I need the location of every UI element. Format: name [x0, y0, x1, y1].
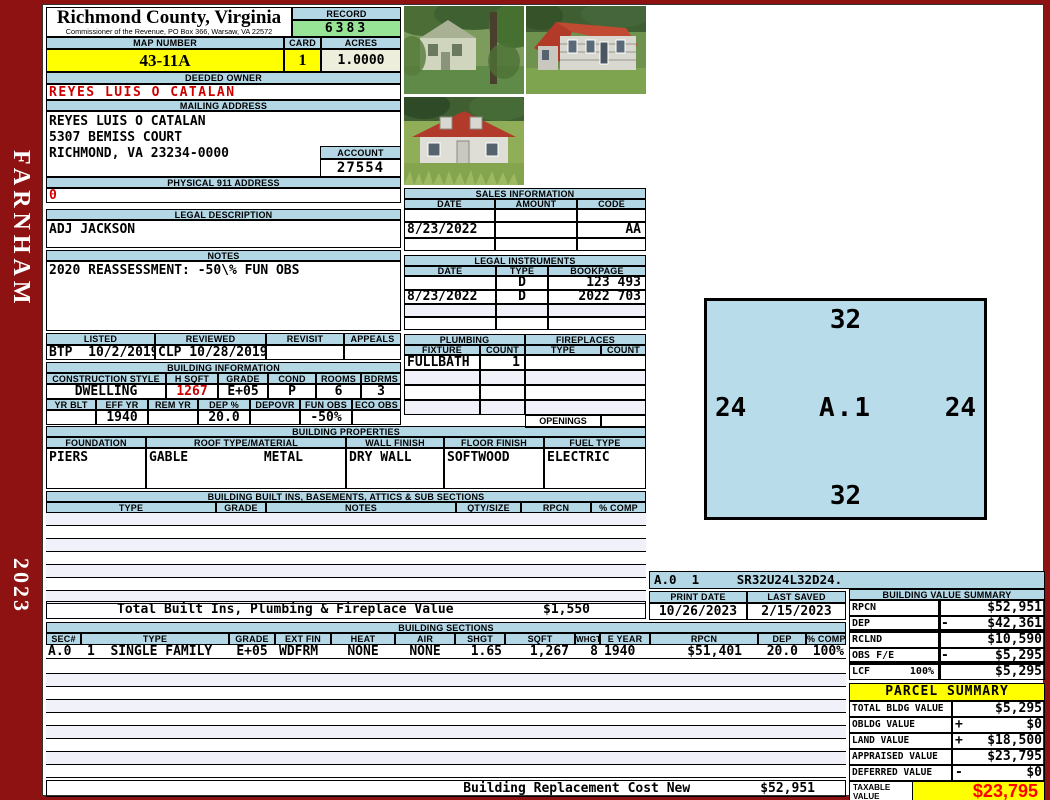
legal-description-value: ADJ JACKSON — [46, 220, 401, 248]
bvs-row-label: RPCN — [849, 600, 939, 616]
openings-label: OPENINGS — [525, 415, 601, 428]
record-value: 6383 — [292, 20, 401, 37]
acres-label: ACRES — [321, 37, 401, 49]
empty-row — [46, 726, 846, 739]
li-col-date: DATE — [404, 266, 496, 276]
property-photo-3 — [404, 97, 524, 185]
fuel-type-label: FUEL TYPE — [544, 437, 646, 448]
deeded-owner-label: DEEDED OWNER — [46, 72, 401, 84]
appeals-label: APPEALS — [344, 333, 401, 345]
fireplace-count-label: COUNT — [601, 345, 646, 355]
fixture-label: FIXTURE — [404, 345, 480, 355]
replacement-cost-value: $52,951 — [690, 781, 845, 796]
mailing-address-label: MAILING ADDRESS — [46, 100, 401, 111]
cond-value: P — [268, 384, 316, 399]
account-value: 27554 — [320, 159, 401, 177]
county-title: Richmond County, Virginia — [47, 8, 291, 28]
built-ins-total-row: Total Built Ins, Plumbing & Fireplace Va… — [46, 601, 646, 619]
rooms-label: ROOMS — [316, 373, 361, 384]
plumbing-cell — [480, 370, 525, 385]
eff-yr-value: 1940 — [96, 410, 148, 425]
sales-col-date: DATE — [404, 199, 495, 209]
empty-row — [46, 578, 646, 591]
wall-finish-label: WALL FINISH — [346, 437, 444, 448]
building-sections: BUILDING SECTIONS SEC# TYPE GRADE EXT FI… — [46, 622, 846, 659]
building-properties-section: BUILDING PROPERTIES FOUNDATION ROOF TYPE… — [46, 426, 646, 489]
record-label: RECORD — [292, 7, 401, 20]
hsqft-label: H SQFT — [166, 373, 218, 384]
reviewed-label: REVIEWED — [155, 333, 266, 345]
notes-value: 2020 REASSESSMENT: -50\% FUN OBS — [46, 261, 401, 331]
sketch-code-line: A.0 1 SR32U24L32D24. — [649, 571, 1045, 589]
bs-cell: 20.0 — [758, 645, 806, 658]
mailing-address-box: REYES LUIS O CATALAN 5307 BEMISS COURT R… — [46, 111, 401, 177]
bs-col: % COMP — [806, 633, 846, 645]
bvs-row-op — [941, 633, 953, 647]
middle-column: SALES INFORMATION DATE AMOUNT CODE 8/23/… — [404, 6, 646, 428]
li-cell — [548, 317, 646, 330]
bvs-row-label: LCF — [852, 665, 870, 679]
parcel-row-label: TOTAL BLDG VALUE — [849, 701, 952, 717]
sales-col-amount: AMOUNT — [495, 199, 577, 209]
openings-value — [601, 415, 646, 428]
built-ins-section: BUILDING BUILT INS, BASEMENTS, ATTICS & … — [46, 491, 646, 604]
replacement-cost-label: Building Replacement Cost New — [463, 781, 690, 796]
card-label: CARD — [284, 37, 321, 49]
mailing-line: REYES LUIS O CATALAN — [49, 114, 400, 130]
eco-obs-label: ECO OBS — [352, 399, 401, 410]
li-cell: 8/23/2022 — [404, 290, 496, 304]
map-number-label: MAP NUMBER — [46, 37, 284, 49]
built-ins-total-value: $1,550 — [543, 602, 645, 618]
print-info-block: PRINT DATE LAST SAVED 10/26/2023 2/15/20… — [649, 591, 846, 620]
sales-cell — [495, 238, 577, 251]
li-cell — [496, 317, 548, 330]
plumbing-count-label: COUNT — [480, 345, 525, 355]
building-value-summary-label: BUILDING VALUE SUMMARY — [849, 589, 1045, 600]
bs-col: TYPE — [81, 633, 229, 645]
bs-col: WHGT — [575, 633, 600, 645]
yr-blt-label: YR BLT — [46, 399, 96, 410]
floor-finish-value: SOFTWOOD — [444, 448, 544, 489]
bvs-row-value: $5,295 — [953, 649, 1044, 661]
sales-cell: 8/23/2022 — [404, 222, 495, 238]
bvs-row-label: RCLND — [849, 632, 939, 648]
sales-cell — [404, 238, 495, 251]
parcel-row-value: $23,795 — [965, 750, 1044, 764]
sales-cell — [495, 222, 577, 238]
li-cell — [404, 276, 496, 290]
parcel-row-value: $18,500 — [965, 734, 1044, 748]
empty-row — [46, 752, 846, 765]
print-date-label: PRINT DATE — [649, 591, 747, 603]
taxable-label: TAXABLE VALUE — [849, 781, 913, 800]
last-saved-label: LAST SAVED — [747, 591, 846, 603]
plumbing-cell — [404, 400, 480, 415]
bvs-row-op: - — [941, 649, 953, 661]
fireplaces-label: FIREPLACES — [525, 334, 646, 345]
li-cell — [496, 304, 548, 317]
physical-911-label: PHYSICAL 911 ADDRESS — [46, 177, 401, 188]
bs-cell: 1940 — [600, 645, 650, 658]
bs-col: SEC# — [46, 633, 81, 645]
bs-col: SHGT — [455, 633, 505, 645]
plumbing-cell — [404, 370, 480, 385]
taxable-row: TAXABLE VALUE $23,795 — [849, 781, 1045, 800]
construction-style-label: CONSTRUCTION STYLE — [46, 373, 166, 384]
reviewed-value: CLP 10/28/2019 — [155, 345, 266, 360]
empty-row — [46, 739, 846, 752]
eff-yr-label: EFF YR — [96, 399, 148, 410]
sketch-dim-top: 32 — [707, 305, 984, 335]
bs-col: E YEAR — [600, 633, 650, 645]
dep-pct-value: 20.0 — [198, 410, 250, 425]
parcel-row-label: OBLDG VALUE — [849, 717, 952, 733]
yr-blt-value — [46, 410, 96, 425]
built-ins-col-grade: GRADE — [216, 502, 266, 513]
sales-information-label: SALES INFORMATION — [404, 188, 646, 199]
district-label: FARNHAM — [7, 150, 34, 309]
bvs-row-sublabel: 100% — [910, 665, 934, 679]
cond-label: COND — [268, 373, 316, 384]
fireplace-cell — [525, 400, 646, 415]
empty-row — [46, 552, 646, 565]
li-cell: 123 493 — [548, 276, 646, 290]
construction-style-value: DWELLING — [46, 384, 166, 399]
county-header: Richmond County, Virginia Commissioner o… — [46, 7, 292, 37]
bs-col: EXT FIN — [275, 633, 331, 645]
listed-value: BTP 10/2/2019 — [46, 345, 155, 360]
parcel-row-label: LAND VALUE — [849, 733, 952, 749]
built-ins-col-notes: NOTES — [266, 502, 456, 513]
account-box: ACCOUNT 27554 — [320, 146, 401, 177]
parcel-row-op: - — [953, 766, 965, 780]
replacement-cost-row: Building Replacement Cost New $52,951 — [46, 780, 846, 797]
bs-cell: WDFRM — [275, 645, 331, 658]
bs-cell: A.0 — [46, 645, 81, 658]
plumbing-cell: FULLBATH — [404, 355, 480, 370]
roof-value: GABLE METAL — [146, 448, 346, 489]
empty-row — [46, 700, 846, 713]
house-side-view-photo — [526, 6, 646, 94]
sales-col-code: CODE — [577, 199, 646, 209]
rooms-value: 6 — [316, 384, 361, 399]
card-body: Richmond County, Virginia Commissioner o… — [42, 4, 1044, 796]
property-record-card: FARNHAM 2023 Richmond County, Virginia C… — [0, 0, 1050, 800]
empty-row — [46, 713, 846, 726]
sketch-dim-bottom: 32 — [707, 481, 984, 511]
eco-obs-value — [352, 410, 401, 425]
depovr-label: DEPOVR — [250, 399, 300, 410]
parcel-row-value: $5,295 — [965, 702, 1044, 716]
property-photo-1 — [404, 6, 524, 94]
house-in-trees-photo — [404, 6, 524, 94]
appeals-value — [344, 345, 401, 360]
building-sections-label: BUILDING SECTIONS — [46, 622, 846, 633]
empty-row — [46, 661, 846, 674]
revisit-label: REVISIT — [266, 333, 344, 345]
acres-value: 1.0000 — [321, 49, 401, 72]
taxable-value: $23,795 — [912, 782, 1044, 800]
parcel-summary-label: PARCEL SUMMARY — [849, 683, 1045, 701]
li-cell — [404, 304, 496, 317]
house-front-view-photo — [404, 97, 524, 185]
bvs-row-label: DEP — [849, 616, 939, 630]
year-label: 2023 — [8, 558, 34, 614]
building-value-summary: BUILDING VALUE SUMMARY RPCN $52,951 DEP … — [849, 589, 1045, 680]
bs-cell: NONE — [331, 645, 395, 658]
last-saved-value: 2/15/2023 — [747, 603, 846, 620]
parcel-summary: PARCEL SUMMARY TOTAL BLDG VALUE $5,295 O… — [849, 683, 1045, 800]
sketch-dim-right: 24 — [945, 393, 976, 423]
parcel-row-op: + — [953, 734, 965, 748]
roof-material-value: METAL — [264, 450, 303, 488]
building-information-label: BUILDING INFORMATION — [46, 362, 401, 373]
parcel-row-op — [953, 702, 965, 716]
fireplace-cell — [525, 385, 646, 400]
built-ins-label: BUILDING BUILT INS, BASEMENTS, ATTICS & … — [46, 491, 646, 502]
roof-label: ROOF TYPE/MATERIAL — [146, 437, 346, 448]
sales-cell — [577, 238, 646, 251]
bs-cell: NONE — [395, 645, 455, 658]
bs-col: AIR — [395, 633, 455, 645]
li-cell — [548, 304, 646, 317]
built-ins-col-type: TYPE — [46, 502, 216, 513]
bs-cell: 1.65 — [455, 645, 505, 658]
revisit-value — [266, 345, 344, 360]
legal-description-label: LEGAL DESCRIPTION — [46, 209, 401, 220]
building-sections-empty-rows — [46, 661, 846, 778]
li-col-type: TYPE — [496, 266, 548, 276]
property-photo-2 — [526, 6, 646, 94]
bs-cell: 1,267 — [505, 645, 575, 658]
li-col-bookpage: BOOKPAGE — [548, 266, 646, 276]
parcel-row-label: DEFERRED VALUE — [849, 765, 952, 781]
built-ins-col-comp: % COMP — [591, 502, 646, 513]
plumbing-label: PLUMBING — [404, 334, 525, 345]
record-box: RECORD 6383 — [292, 7, 401, 37]
li-cell — [404, 317, 496, 330]
mailing-line: 5307 BEMISS COURT — [49, 130, 400, 146]
bvs-row-op — [941, 601, 953, 615]
building-sketch: 32 24 A.1 24 32 — [704, 298, 987, 520]
rem-yr-value — [148, 410, 198, 425]
bdrms-label: BDRMS — [361, 373, 401, 384]
bvs-row-op — [941, 665, 953, 679]
account-label: ACCOUNT — [320, 146, 401, 159]
roof-type-value: GABLE — [149, 450, 188, 488]
bdrms-value: 3 — [361, 384, 401, 399]
bvs-row-value: $42,361 — [953, 617, 1044, 629]
plumbing-cell — [480, 385, 525, 400]
bs-cell: 1 SINGLE FAMILY — [81, 645, 229, 658]
bs-col: GRADE — [229, 633, 275, 645]
listed-label: LISTED — [46, 333, 155, 345]
built-ins-col-rpcn: RPCN — [521, 502, 591, 513]
map-number-value: 43-11A — [46, 49, 284, 72]
built-ins-total-label: Total Built Ins, Plumbing & Fireplace Va… — [47, 602, 454, 618]
parcel-row-value: $0 — [965, 718, 1044, 732]
wall-finish-value: DRY WALL — [346, 448, 444, 489]
bs-col: HEAT — [331, 633, 395, 645]
grade-label: GRADE — [218, 373, 268, 384]
bs-col: DEP — [758, 633, 806, 645]
sales-cell — [404, 209, 495, 222]
empty-row — [46, 539, 646, 552]
bs-col: RPCN — [650, 633, 758, 645]
bvs-row-value: $5,295 — [953, 665, 1044, 679]
built-ins-col-qty: QTY/SIZE — [456, 502, 521, 513]
physical-911-value: 0 — [46, 188, 401, 203]
property-photo-empty — [526, 97, 646, 185]
empty-row — [46, 526, 646, 539]
sales-cell: AA — [577, 222, 646, 238]
empty-row — [46, 687, 846, 700]
fun-obs-value: -50% — [300, 410, 352, 425]
bvs-row-label: OBS F/E — [849, 648, 939, 662]
empty-row — [46, 565, 646, 578]
bs-col: SQFT — [505, 633, 575, 645]
county-subtitle: Commissioner of the Revenue, PO Box 366,… — [47, 28, 291, 36]
bvs-row-value: $10,590 — [953, 633, 1044, 647]
empty-row — [46, 513, 646, 526]
hsqft-value: 1267 — [166, 384, 218, 399]
parcel-row-label: APPRAISED VALUE — [849, 749, 952, 765]
fireplace-type-label: TYPE — [525, 345, 601, 355]
bvs-row-op: - — [941, 617, 953, 629]
print-date-value: 10/26/2023 — [649, 603, 747, 620]
bs-cell: E+05 — [229, 645, 275, 658]
bvs-row-value: $52,951 — [953, 601, 1044, 615]
depovr-value — [250, 410, 300, 425]
left-column: Richmond County, Virginia Commissioner o… — [46, 7, 401, 425]
card-value: 1 — [284, 49, 321, 72]
fun-obs-label: FUN OBS — [300, 399, 352, 410]
plumbing-cell — [480, 400, 525, 415]
plumbing-cell — [404, 385, 480, 400]
parcel-row-op — [953, 750, 965, 764]
fuel-type-value: ELECTRIC — [544, 448, 646, 489]
fireplace-cell — [525, 370, 646, 385]
sales-cell — [495, 209, 577, 222]
floor-finish-label: FLOOR FINISH — [444, 437, 544, 448]
li-cell: D — [496, 290, 548, 304]
empty-row — [46, 765, 846, 778]
bs-cell: 100% — [806, 645, 846, 658]
foundation-value: PIERS — [46, 448, 146, 489]
parcel-row-op: + — [953, 718, 965, 732]
grade-value: E+05 — [218, 384, 268, 399]
fireplace-cell — [525, 355, 646, 370]
parcel-row-value: $0 — [965, 766, 1044, 780]
sales-cell — [577, 209, 646, 222]
bs-cell: $51,401 — [650, 645, 758, 658]
bs-cell: 8 — [575, 645, 600, 658]
li-cell: 2022 703 — [548, 290, 646, 304]
rem-yr-label: REM YR — [148, 399, 198, 410]
deeded-owner-value: REYES LUIS O CATALAN — [46, 84, 401, 100]
notes-label: NOTES — [46, 250, 401, 261]
dep-pct-label: DEP % — [198, 399, 250, 410]
sketch-section-label: A.1 — [707, 393, 984, 423]
photo-grid — [404, 6, 646, 185]
foundation-label: FOUNDATION — [46, 437, 146, 448]
plumbing-cell: 1 — [480, 355, 525, 370]
li-cell: D — [496, 276, 548, 290]
legal-instruments-label: LEGAL INSTRUMENTS — [404, 255, 646, 266]
empty-row — [46, 674, 846, 687]
